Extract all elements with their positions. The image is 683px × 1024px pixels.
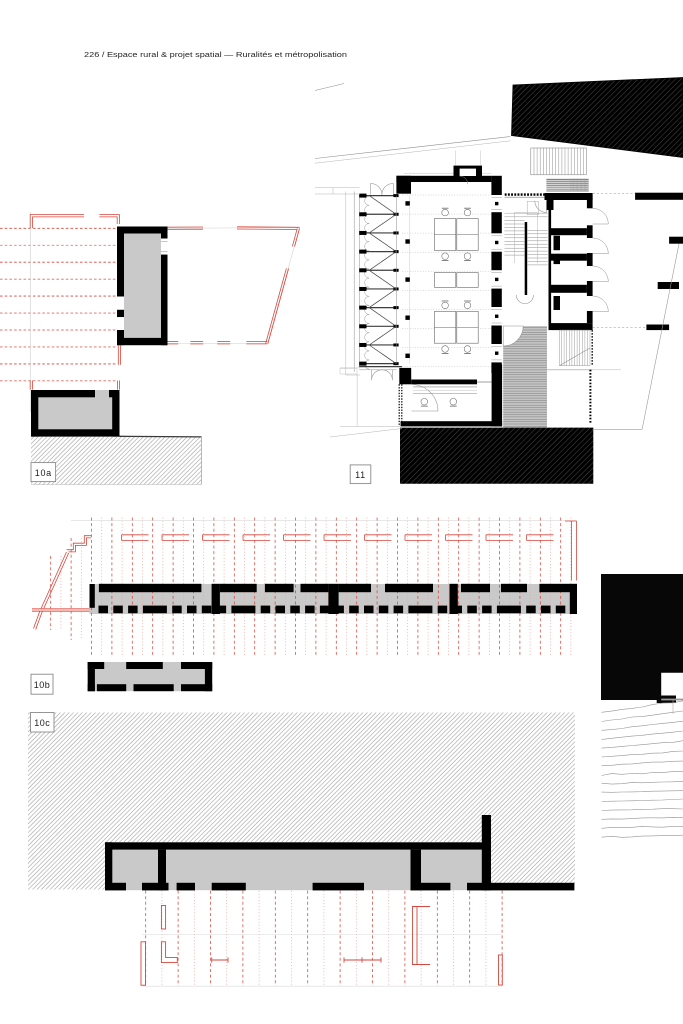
svg-text:10b: 10b bbox=[34, 680, 51, 690]
svg-text:10c: 10c bbox=[34, 718, 50, 728]
svg-text:10a: 10a bbox=[35, 468, 52, 478]
svg-text:226 / Espace rural & projet sp: 226 / Espace rural & projet spatial — Ru… bbox=[84, 50, 347, 59]
svg-text:11: 11 bbox=[355, 470, 366, 480]
